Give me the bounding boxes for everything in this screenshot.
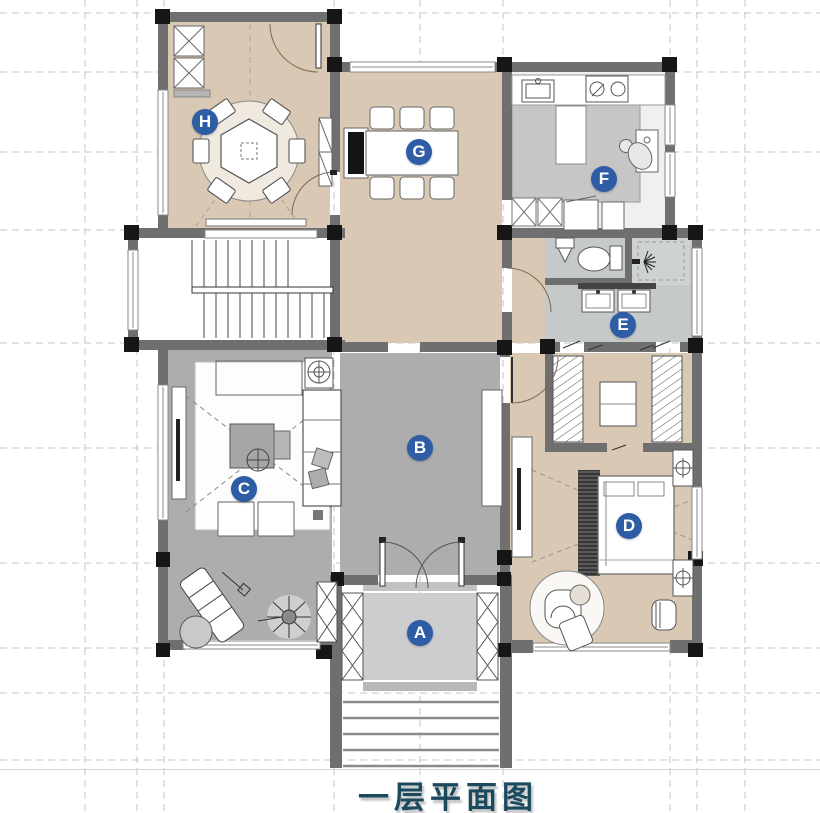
porch-column-right-icon: [477, 593, 498, 680]
wardrobe-right-icon: [652, 356, 682, 442]
closet-island-icon: [600, 382, 636, 426]
tv-console-icon: [512, 437, 532, 557]
toilet-icon: [578, 246, 622, 271]
room-label-f: F: [591, 166, 617, 192]
floor-plan-drawing: [0, 0, 820, 813]
shower-floor: [632, 238, 690, 285]
media-box-icon: [313, 510, 323, 520]
porch-bottom-step: [363, 682, 477, 691]
terrace-table-icon: [180, 616, 212, 648]
porch-column-left-icon: [342, 593, 363, 680]
terrace-column-icon: [317, 582, 337, 642]
room-label-a: A: [407, 620, 433, 646]
kitchen-island-icon: [556, 106, 586, 164]
bedside-runner-icon: [578, 470, 600, 576]
window-seat-icon: [319, 118, 332, 186]
stair-handrail: [192, 287, 333, 293]
living-c-furniture: [172, 358, 341, 536]
plan-title: 一层平面图: [0, 772, 820, 813]
stove-icon: [586, 76, 628, 102]
room-label-d: D: [616, 513, 642, 539]
room-label-h: H: [192, 109, 218, 135]
hall-cabinet-icon: [482, 390, 502, 506]
room-label-g: G: [406, 139, 432, 165]
floor-corridor: [512, 238, 545, 343]
room-label-e: E: [610, 312, 636, 338]
tv-screen-c-icon: [176, 419, 180, 481]
entry-steps: [343, 702, 499, 766]
bench-icon: [206, 219, 306, 226]
ottoman-icon: [218, 502, 254, 536]
sofa-icon: [303, 390, 341, 506]
corner-table-lamp-icon: [305, 358, 333, 388]
floor-hall-b: [340, 353, 500, 575]
footer-divider: [0, 769, 820, 770]
sink-icon: [522, 79, 554, 103]
room-label-b: B: [407, 435, 433, 461]
room-label-c: C: [231, 476, 257, 502]
tv-screen-icon: [517, 468, 521, 530]
wardrobe-left-icon: [553, 356, 583, 442]
side-chair-icon: [652, 600, 676, 630]
coffee-table-icon: [230, 424, 274, 468]
ottoman-icon: [258, 502, 294, 536]
floor-plan-page: A B C D E F G H 一层平面图: [0, 0, 820, 813]
sideboard-icon: [348, 132, 364, 174]
side-table-icon: [274, 431, 290, 459]
